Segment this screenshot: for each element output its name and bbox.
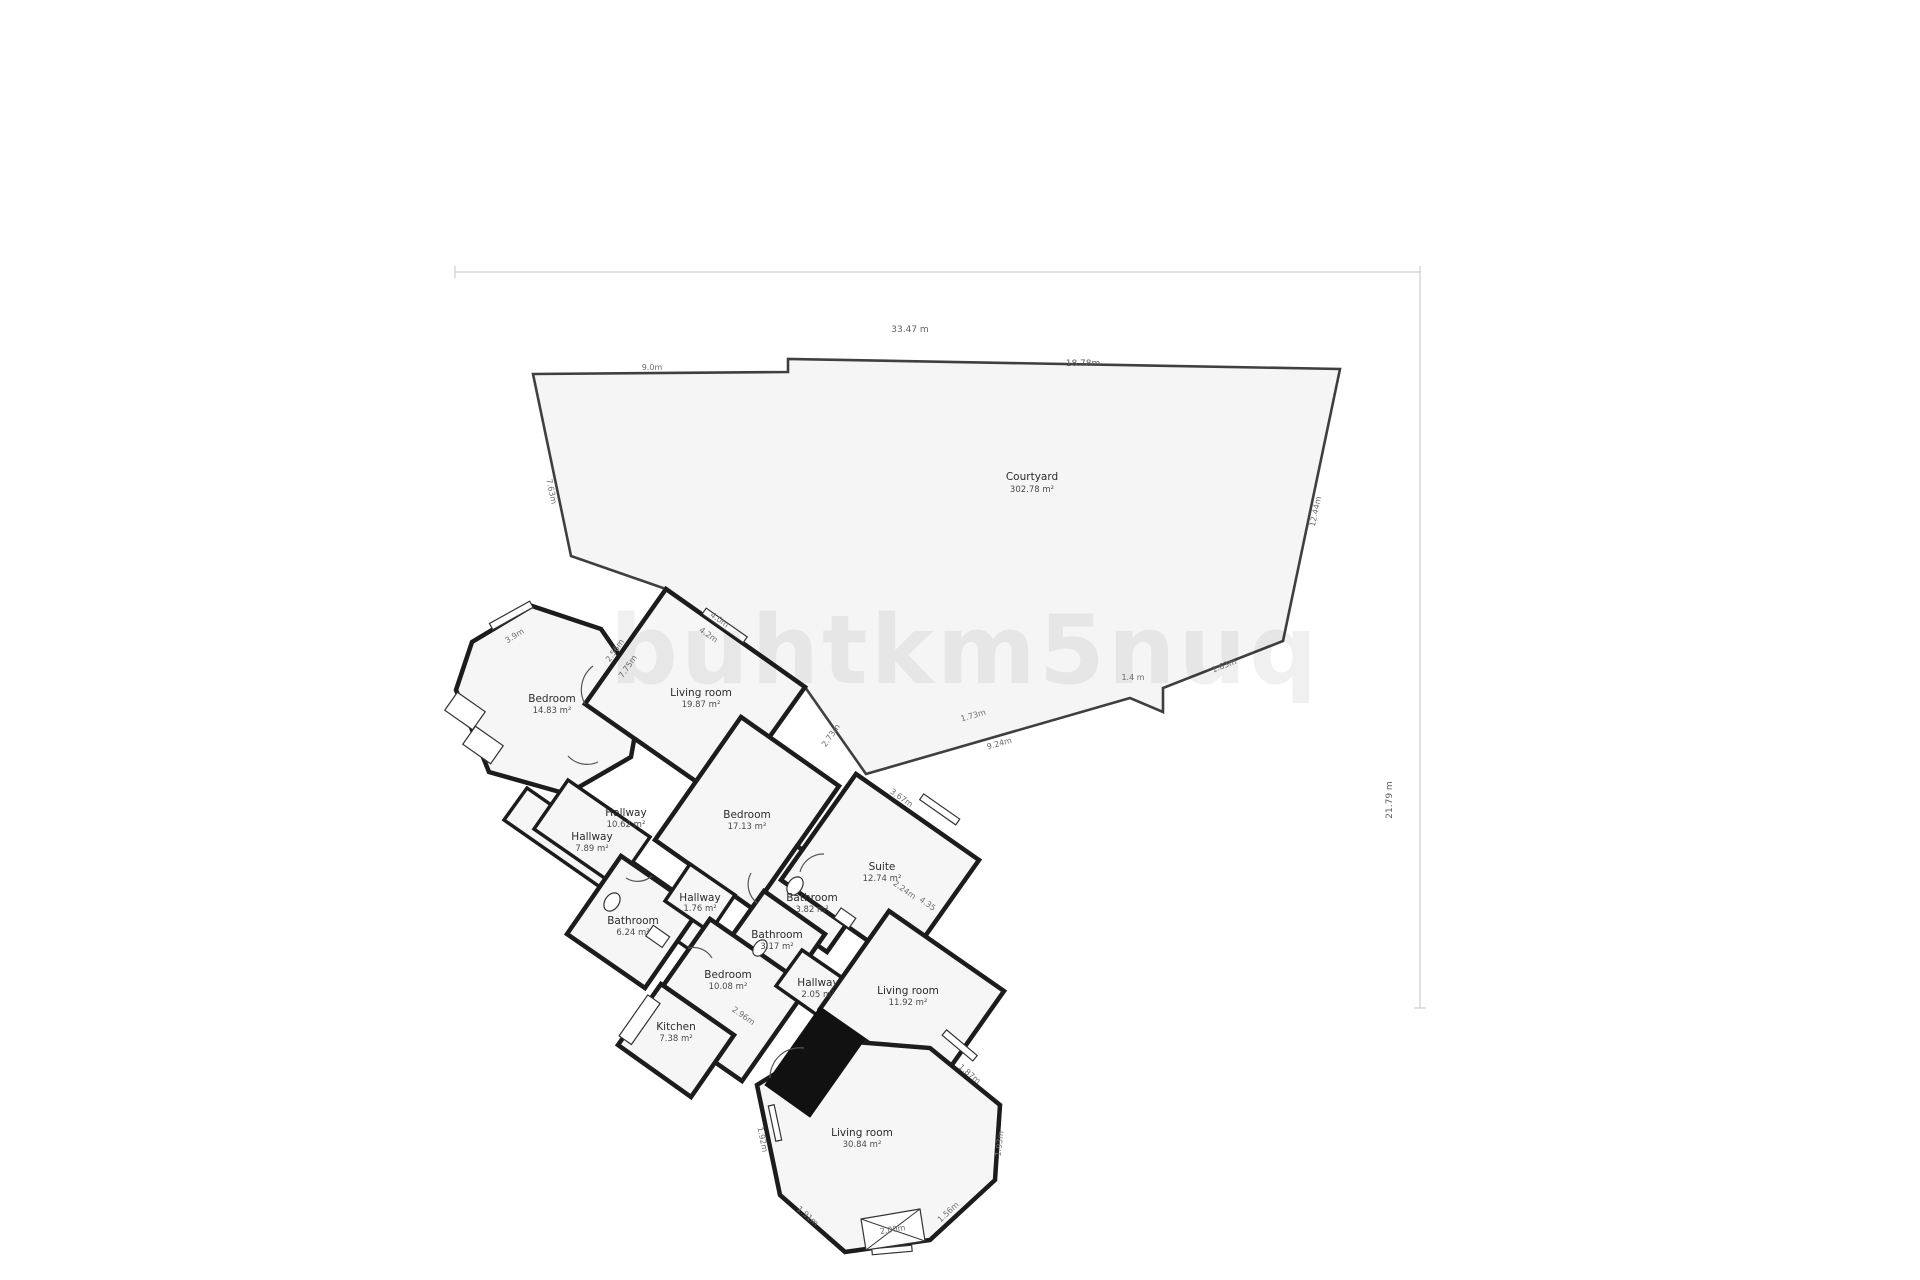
room-bathroom-b-area: 3.82 m² (795, 905, 828, 915)
room-bedroom-b-label: Bedroom (723, 809, 771, 821)
room-kitchen-area: 7.38 m² (659, 1034, 692, 1044)
room-bedroom-b-area: 17.13 m² (728, 822, 767, 832)
room-bathroom-c-label: Bathroom (751, 929, 803, 941)
room-hallway-c-area: 1.76 m² (683, 904, 716, 914)
room-bathroom-c-area: 3.17 m² (760, 942, 793, 952)
room-bedroom-a-label: Bedroom (528, 693, 576, 705)
dim-top-right: 18.78m (1066, 359, 1101, 369)
floorplan-canvas: Courtyard 302.78 m² (0, 0, 1920, 1280)
room-bathroom-a-label: Bathroom (607, 915, 659, 927)
floorplan-page: Courtyard 302.78 m² (0, 0, 1920, 1280)
dim-top-left: 9.0m (642, 363, 663, 372)
room-hallway-a-label: Hallway (571, 831, 612, 843)
room-suite-label: Suite (869, 861, 896, 873)
watermark-text: buhtkm5nuq (610, 596, 1320, 706)
room-bathroom-b-label: Bathroom (786, 892, 838, 904)
room-hallway-a-area: 7.89 m² (575, 844, 608, 854)
room-hallway-b-label: Hallway (605, 807, 646, 819)
room-bedroom-c-label: Bedroom (704, 969, 752, 981)
room-living-room-c-area: 30.84 m² (843, 1140, 882, 1150)
dim-overall-height: 21.79 m (1385, 781, 1395, 818)
room-bedroom-a-area: 14.83 m² (533, 706, 572, 716)
room-kitchen-label: Kitchen (656, 1021, 695, 1033)
room-bathroom-a-area: 6.24 m² (616, 928, 649, 938)
room-living-room-b-label: Living room (877, 985, 939, 997)
room-hallway-b-area: 10.62 m² (607, 820, 646, 830)
room-courtyard-label: Courtyard (1006, 471, 1058, 483)
room-hallway-c-label: Hallway (679, 892, 720, 904)
dim-overall-width: 33.47 m (891, 325, 928, 335)
dim-octagon: 1.93m (993, 1130, 1005, 1157)
room-living-room-b-area: 11.92 m² (889, 998, 928, 1008)
room-hallway-e-label: Hallway (797, 977, 838, 989)
room-hallway-e-area: 2.05 m² (801, 990, 834, 1000)
room-bedroom-c-area: 10.08 m² (709, 982, 748, 992)
room-living-room-c-label: Living room (831, 1127, 893, 1139)
room-courtyard-area: 302.78 m² (1010, 485, 1054, 495)
